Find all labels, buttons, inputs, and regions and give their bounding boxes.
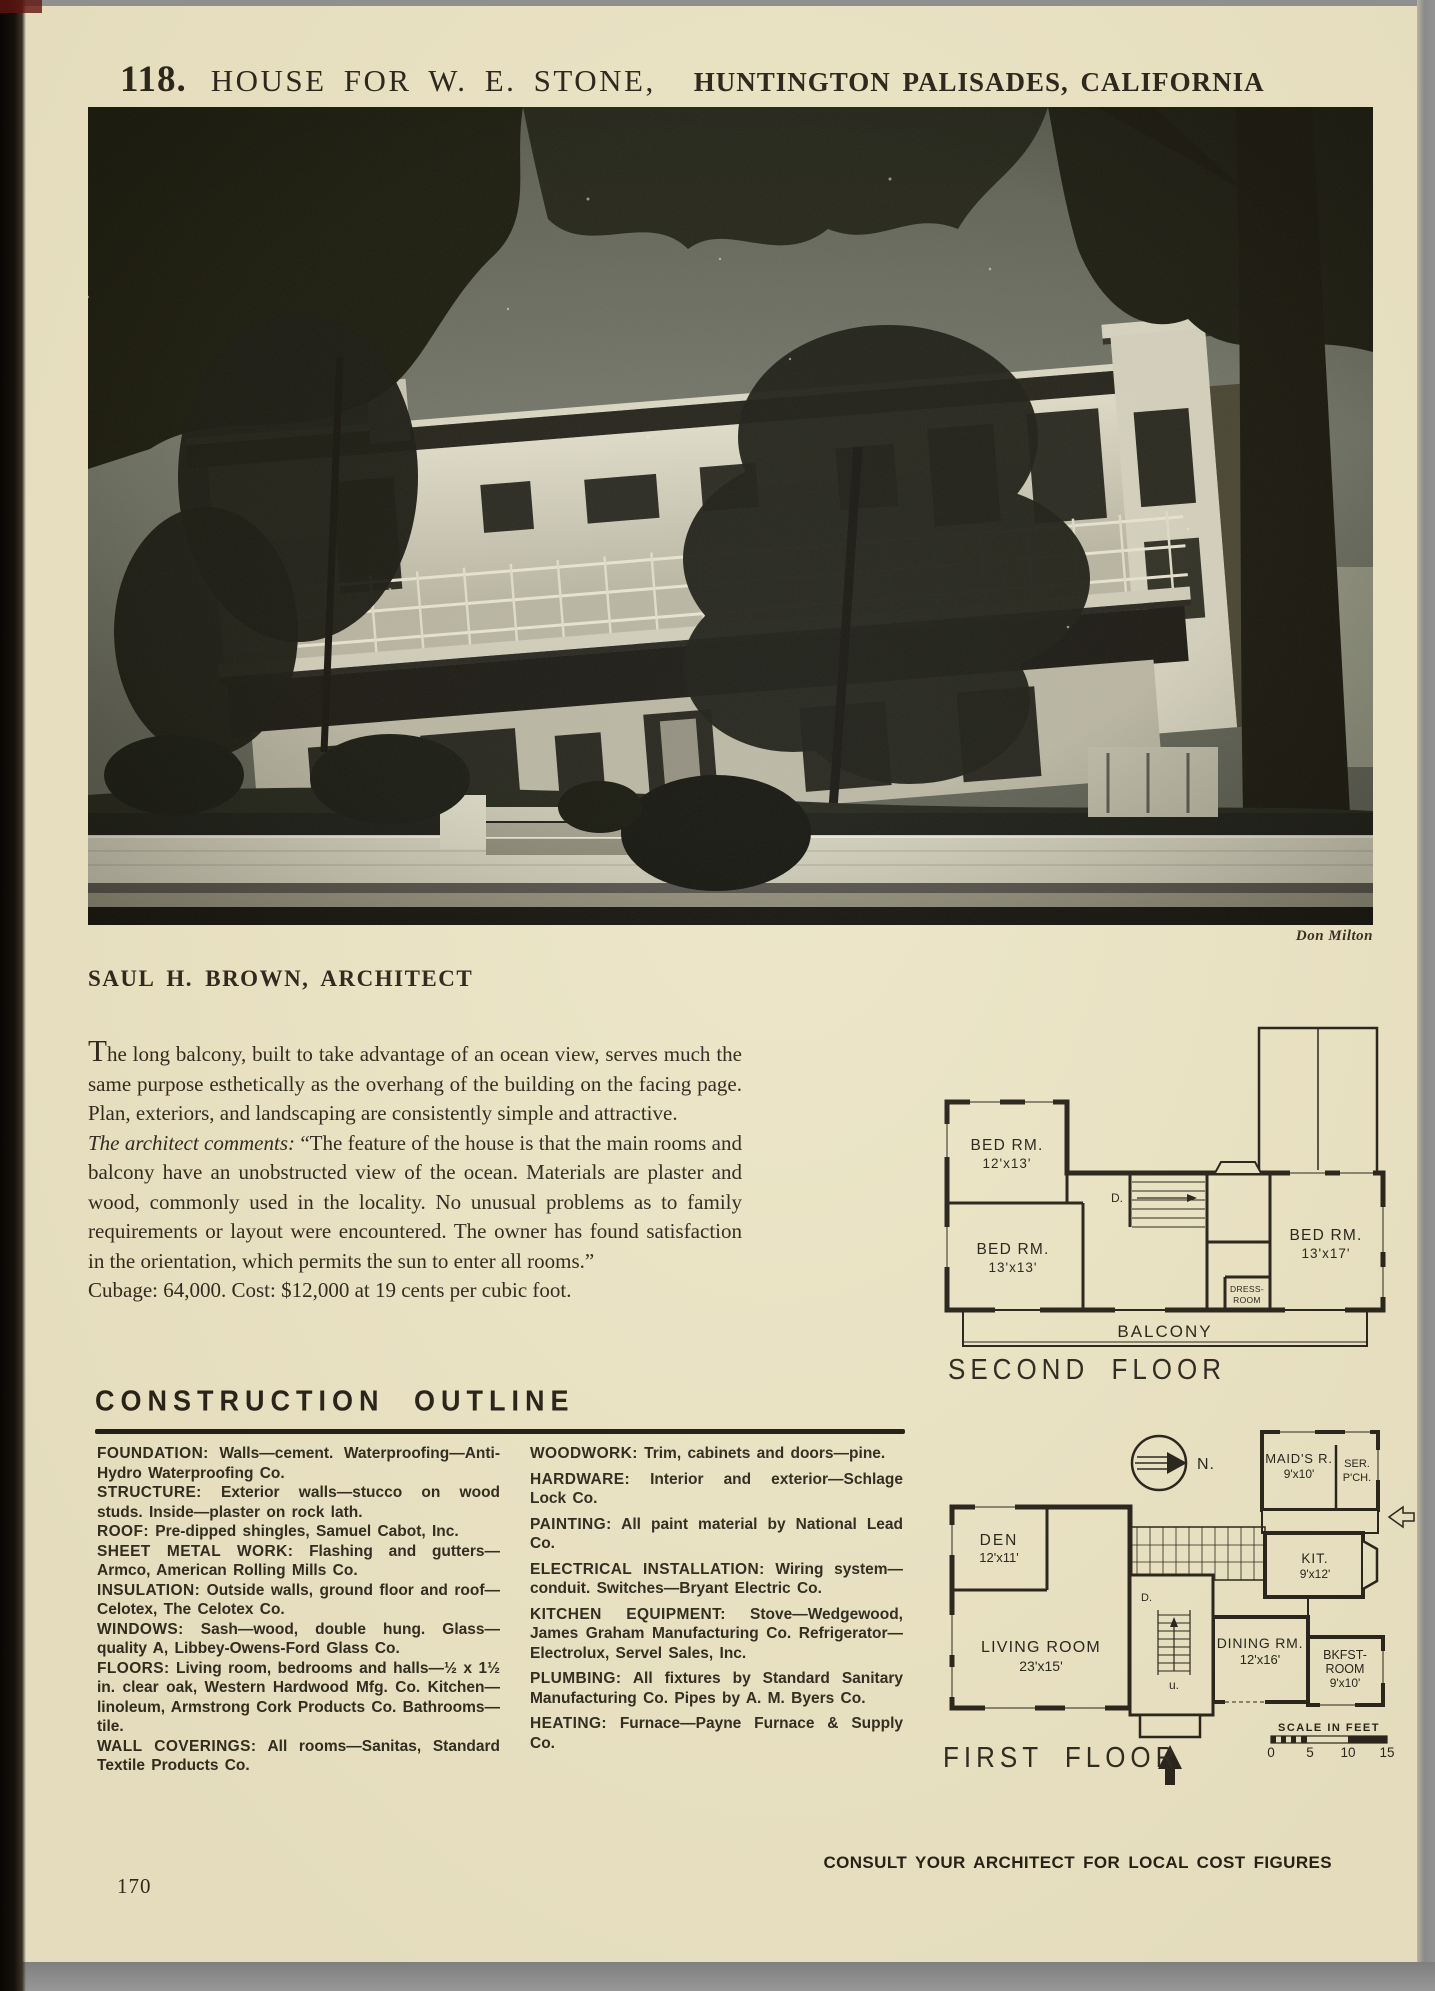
architect-name: SAUL H. BROWN, ARCHITECT bbox=[88, 966, 473, 992]
page-title: HOUSE FOR W. E. STONE, bbox=[211, 63, 656, 99]
construction-item: FLOORS: Living room, bedrooms and halls—… bbox=[97, 1659, 500, 1737]
balcony-label: BALCONY bbox=[1117, 1322, 1212, 1341]
second-floor-caption: SECOND FLOOR bbox=[948, 1352, 1226, 1387]
scan-edge-bottom bbox=[0, 1962, 1435, 1991]
construction-outline-heading: CONSTRUCTION OUTLINE bbox=[95, 1385, 575, 1418]
scan-edge-right bbox=[1417, 0, 1435, 1991]
page-number: 170 bbox=[117, 1874, 152, 1899]
construction-item: WOODWORK: Trim, cabinets and doors—pine. bbox=[530, 1444, 903, 1464]
construction-right-column: WOODWORK: Trim, cabinets and doors—pine.… bbox=[530, 1444, 903, 1776]
scale-tick-15: 15 bbox=[1379, 1745, 1394, 1760]
first-floor-plan: N. bbox=[925, 1415, 1415, 1790]
book-page: 118. HOUSE FOR W. E. STONE, HUNTINGTON P… bbox=[0, 0, 1417, 1962]
construction-item: PLUMBING: All fixtures by Standard Sanit… bbox=[530, 1669, 903, 1708]
maids-room-label: MAID'S R. bbox=[1265, 1451, 1332, 1466]
page-location: HUNTINGTON PALISADES, CALIFORNIA bbox=[694, 67, 1265, 98]
kitchen-size: 9'x12' bbox=[1300, 1567, 1331, 1581]
scale-tick-5: 5 bbox=[1306, 1745, 1314, 1760]
den-size: 12'x11' bbox=[979, 1550, 1018, 1565]
north-label: N. bbox=[1197, 1456, 1215, 1473]
stair-up-label: u. bbox=[1169, 1678, 1179, 1692]
construction-item: FOUNDATION: Walls—cement. Waterproofing—… bbox=[97, 1444, 500, 1483]
service-porch-label-2: P'CH. bbox=[1343, 1472, 1371, 1484]
title-bar: 118. HOUSE FOR W. E. STONE, HUNTINGTON P… bbox=[88, 58, 1388, 101]
stair-down-label: D. bbox=[1111, 1191, 1123, 1205]
north-arrow-icon bbox=[1132, 1436, 1187, 1490]
construction-item: HARDWARE: Interior and exterior—Schlage … bbox=[530, 1470, 903, 1509]
construction-item: SHEET METAL WORK: Flashing and gutters—A… bbox=[97, 1542, 500, 1581]
dining-room-label: DINING RM. bbox=[1217, 1635, 1304, 1651]
bedroom3-size: 13'x17' bbox=[1302, 1246, 1351, 1261]
house-photo-illustration bbox=[88, 107, 1373, 925]
construction-outline: FOUNDATION: Walls—cement. Waterproofing—… bbox=[97, 1444, 903, 1776]
intro-paragraph-1: The long balcony, built to take advantag… bbox=[88, 1040, 742, 1129]
breakfast-room-label-1: BKFST- bbox=[1323, 1648, 1367, 1662]
second-floor-plan: BED RM. 12'x13' BED RM. 13'x13' BED RM. … bbox=[925, 1012, 1395, 1357]
scale-bar: SCALE IN FEET 0 5 10 15 bbox=[1267, 1722, 1394, 1760]
construction-item: STRUCTURE: Exterior walls—stucco on wood… bbox=[97, 1483, 500, 1522]
architect-comments-lead: The architect comments: bbox=[88, 1131, 295, 1155]
photo-credit: Don Milton bbox=[1153, 928, 1373, 945]
service-porch-label-1: SER. bbox=[1344, 1458, 1370, 1470]
intro-text: The long balcony, built to take advantag… bbox=[88, 1040, 742, 1306]
scale-tick-10: 10 bbox=[1340, 1745, 1355, 1760]
service-entry-arrow-icon bbox=[1389, 1507, 1414, 1527]
plate-number: 118. bbox=[120, 58, 187, 101]
book-binding-edge bbox=[0, 0, 26, 1991]
breakfast-room-size: 9'x10' bbox=[1330, 1676, 1361, 1690]
construction-item: ROOF: Pre-dipped shingles, Samuel Cabot,… bbox=[97, 1522, 500, 1542]
construction-item: INSULATION: Outside walls, ground floor … bbox=[97, 1581, 500, 1620]
stair-down-label: D. bbox=[1141, 1592, 1152, 1604]
bedroom2-label: BED RM. bbox=[977, 1241, 1050, 1258]
binding-red-mark bbox=[0, 0, 42, 13]
construction-item: PAINTING: All paint material by National… bbox=[530, 1515, 903, 1554]
intro-paragraph-2: The architect comments: “The feature of … bbox=[88, 1129, 742, 1277]
construction-item: WALL COVERINGS: All rooms—Sanitas, Stand… bbox=[97, 1737, 500, 1776]
construction-item: HEATING: Furnace—Payne Furnace & Supply … bbox=[530, 1714, 903, 1753]
living-room-label: LIVING ROOM bbox=[981, 1639, 1101, 1656]
cubage-cost-line: Cubage: 64,000. Cost: $12,000 at 19 cent… bbox=[88, 1276, 742, 1306]
maids-room-size: 9'x10' bbox=[1284, 1467, 1315, 1481]
breakfast-room-label-2: ROOM bbox=[1326, 1662, 1365, 1676]
scale-tick-0: 0 bbox=[1267, 1745, 1275, 1760]
bedroom2-size: 13'x13' bbox=[989, 1260, 1038, 1275]
living-room-size: 23'x15' bbox=[1019, 1658, 1063, 1674]
dress-room-label-1: DRESS- bbox=[1230, 1284, 1264, 1294]
construction-left-column: FOUNDATION: Walls—cement. Waterproofing—… bbox=[97, 1444, 500, 1776]
scan-edge-top bbox=[0, 0, 1435, 6]
bedroom3-label: BED RM. bbox=[1290, 1227, 1363, 1244]
kitchen-label: KIT. bbox=[1301, 1551, 1328, 1566]
den-label: DEN bbox=[980, 1532, 1019, 1549]
dining-room-size: 12'x16' bbox=[1240, 1652, 1280, 1667]
construction-item: KITCHEN EQUIPMENT: Stove—Wedgewood, Jame… bbox=[530, 1605, 903, 1664]
footer-notice: CONSULT YOUR ARCHITECT FOR LOCAL COST FI… bbox=[600, 1853, 1332, 1873]
house-photograph bbox=[88, 107, 1373, 925]
bedroom1-size: 12'x13' bbox=[983, 1156, 1032, 1171]
construction-item: ELECTRICAL INSTALLATION: Wiring system—c… bbox=[530, 1560, 903, 1599]
dress-room-label-2: ROOM bbox=[1233, 1295, 1261, 1305]
heading-rule bbox=[95, 1429, 905, 1434]
first-floor-caption: FIRST FLOOR bbox=[943, 1740, 1179, 1775]
construction-item: WINDOWS: Sash—wood, double hung. Glass—q… bbox=[97, 1620, 500, 1659]
scale-label: SCALE IN FEET bbox=[1278, 1722, 1380, 1734]
bedroom1-label: BED RM. bbox=[971, 1137, 1044, 1154]
